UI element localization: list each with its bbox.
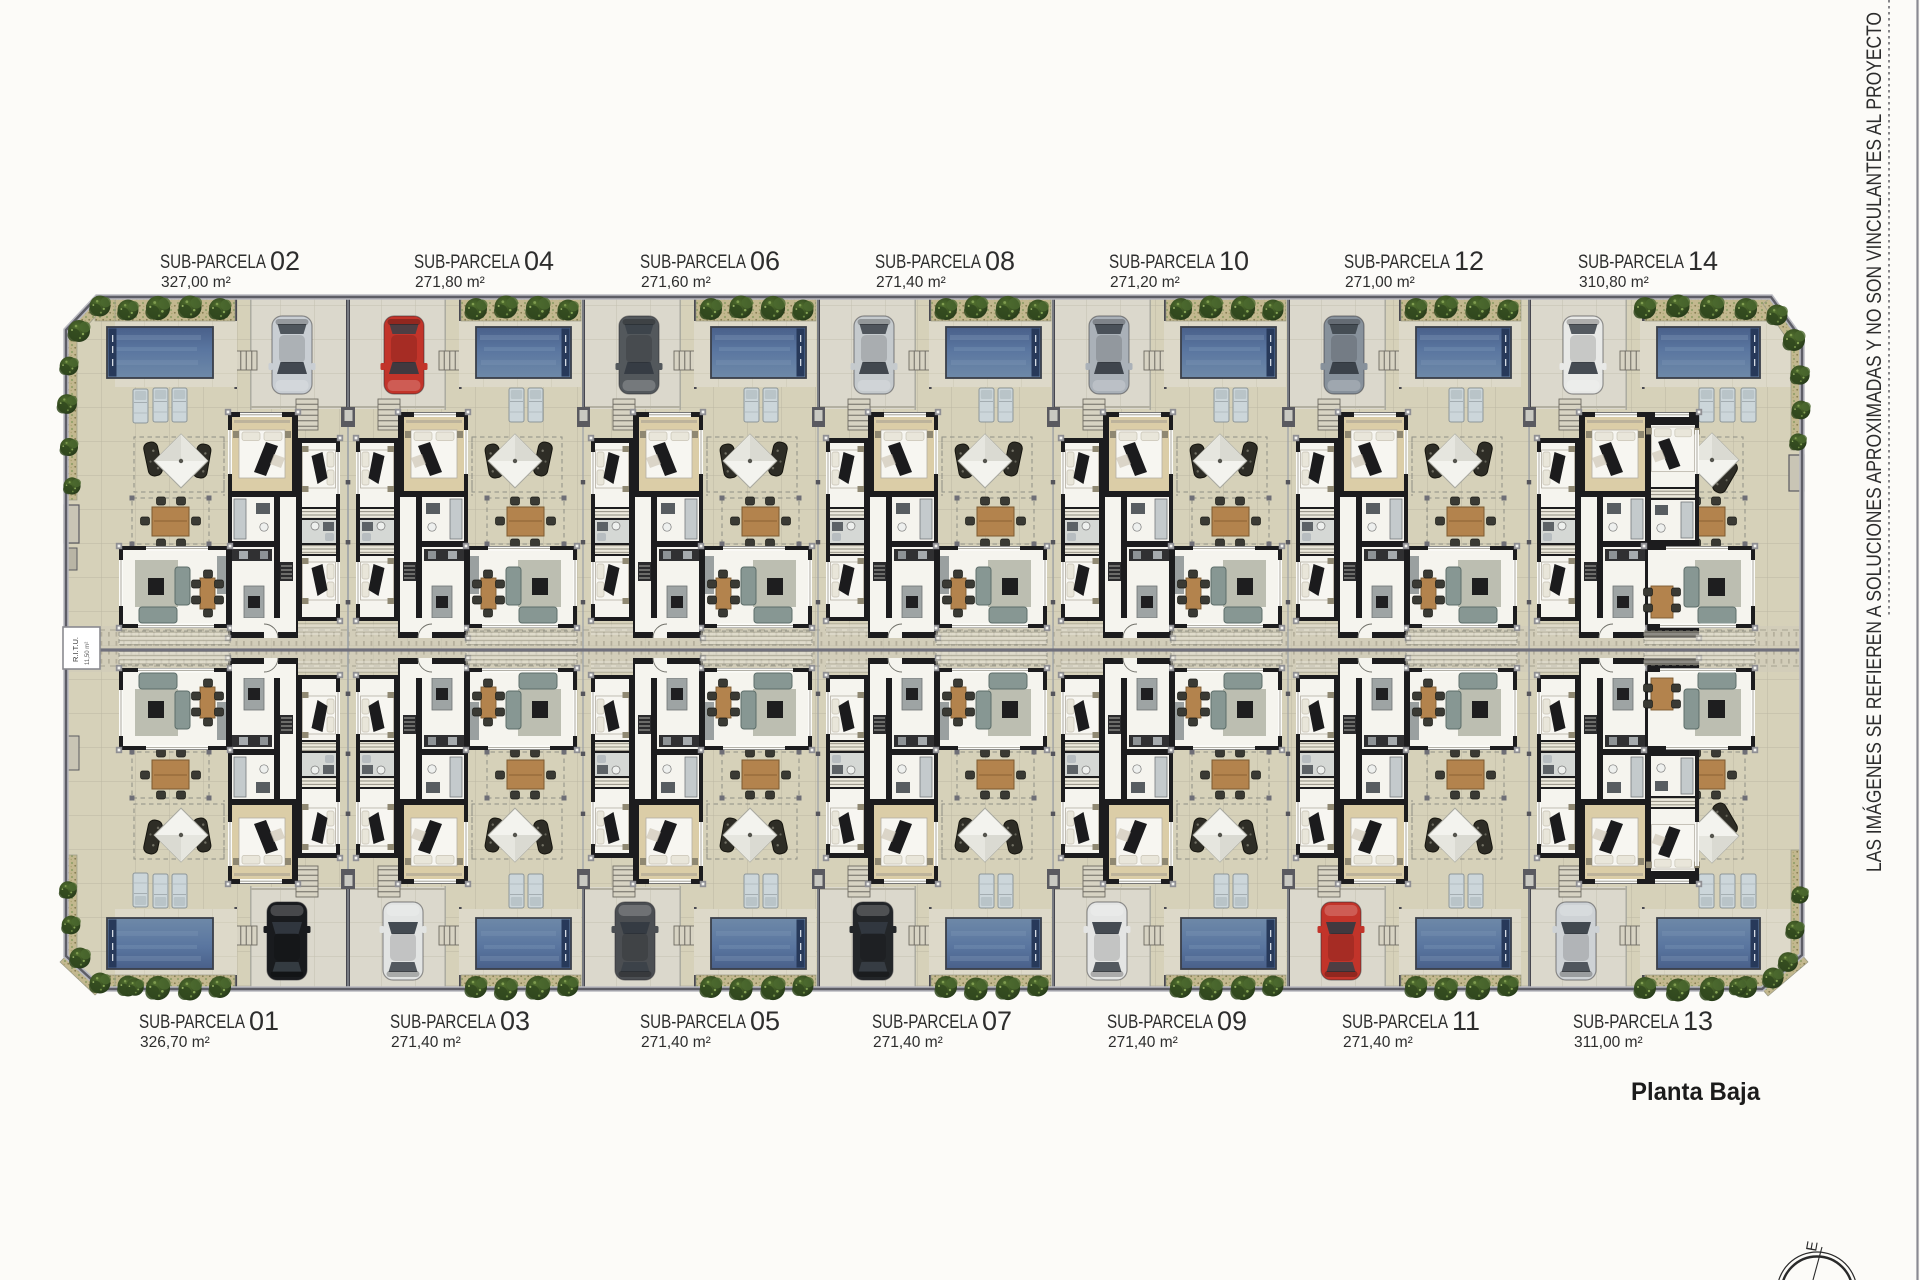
svg-text:07: 07: [982, 1006, 1012, 1036]
svg-text:SUB-PARCELA: SUB-PARCELA: [640, 252, 746, 273]
svg-text:SUB-PARCELA: SUB-PARCELA: [139, 1012, 245, 1033]
svg-text:SUB-PARCELA: SUB-PARCELA: [640, 1012, 746, 1033]
svg-text:12: 12: [1454, 246, 1484, 276]
svg-text:11: 11: [1452, 1006, 1480, 1036]
svg-text:327,00 m²: 327,00 m²: [161, 274, 231, 291]
svg-text:09: 09: [1217, 1006, 1247, 1036]
svg-text:271,00 m²: 271,00 m²: [1345, 274, 1415, 291]
svg-text:SUB-PARCELA: SUB-PARCELA: [875, 252, 981, 273]
svg-text:10: 10: [1219, 246, 1249, 276]
svg-text:326,70 m²: 326,70 m²: [140, 1034, 210, 1051]
svg-text:06: 06: [750, 246, 780, 276]
svg-text:SUB-PARCELA: SUB-PARCELA: [160, 252, 266, 273]
svg-text:SUB-PARCELA: SUB-PARCELA: [1107, 1012, 1213, 1033]
svg-text:14: 14: [1688, 246, 1718, 276]
svg-text:05: 05: [750, 1006, 780, 1036]
svg-text:271,40 m²: 271,40 m²: [876, 274, 946, 291]
svg-text:03: 03: [500, 1006, 530, 1036]
svg-text:08: 08: [985, 246, 1015, 276]
svg-text:271,60 m²: 271,60 m²: [641, 274, 711, 291]
svg-text:LAS IMÁGENES SE REFIEREN A SOL: LAS IMÁGENES SE REFIEREN A SOLUCIONES AP…: [1863, 12, 1886, 872]
svg-text:271,40 m²: 271,40 m²: [1108, 1034, 1178, 1051]
svg-text:SUB-PARCELA: SUB-PARCELA: [1573, 1012, 1679, 1033]
svg-text:Planta Baja: Planta Baja: [1631, 1078, 1761, 1106]
svg-text:271,20 m²: 271,20 m²: [1110, 274, 1180, 291]
svg-text:271,40 m²: 271,40 m²: [1343, 1034, 1413, 1051]
svg-text:271,40 m²: 271,40 m²: [641, 1034, 711, 1051]
svg-text:SUB-PARCELA: SUB-PARCELA: [1342, 1012, 1448, 1033]
svg-text:13: 13: [1683, 1006, 1713, 1036]
svg-text:SUB-PARCELA: SUB-PARCELA: [414, 252, 520, 273]
svg-text:R.I.T.U.: R.I.T.U.: [71, 637, 80, 662]
svg-text:271,80 m²: 271,80 m²: [415, 274, 485, 291]
svg-text:SUB-PARCELA: SUB-PARCELA: [390, 1012, 496, 1033]
svg-text:271,40 m²: 271,40 m²: [391, 1034, 461, 1051]
svg-text:01: 01: [249, 1006, 279, 1036]
svg-text:SUB-PARCELA: SUB-PARCELA: [1578, 252, 1684, 273]
svg-text:271,40 m²: 271,40 m²: [873, 1034, 943, 1051]
svg-text:311,00 m²: 311,00 m²: [1574, 1034, 1643, 1051]
svg-text:04: 04: [524, 246, 554, 276]
svg-text:SUB-PARCELA: SUB-PARCELA: [1344, 252, 1450, 273]
svg-text:310,80 m²: 310,80 m²: [1579, 274, 1649, 291]
svg-text:SUB-PARCELA: SUB-PARCELA: [1109, 252, 1215, 273]
svg-text:SUB-PARCELA: SUB-PARCELA: [872, 1012, 978, 1033]
svg-text:11,50 m²: 11,50 m²: [85, 642, 91, 665]
svg-text:02: 02: [270, 246, 300, 276]
